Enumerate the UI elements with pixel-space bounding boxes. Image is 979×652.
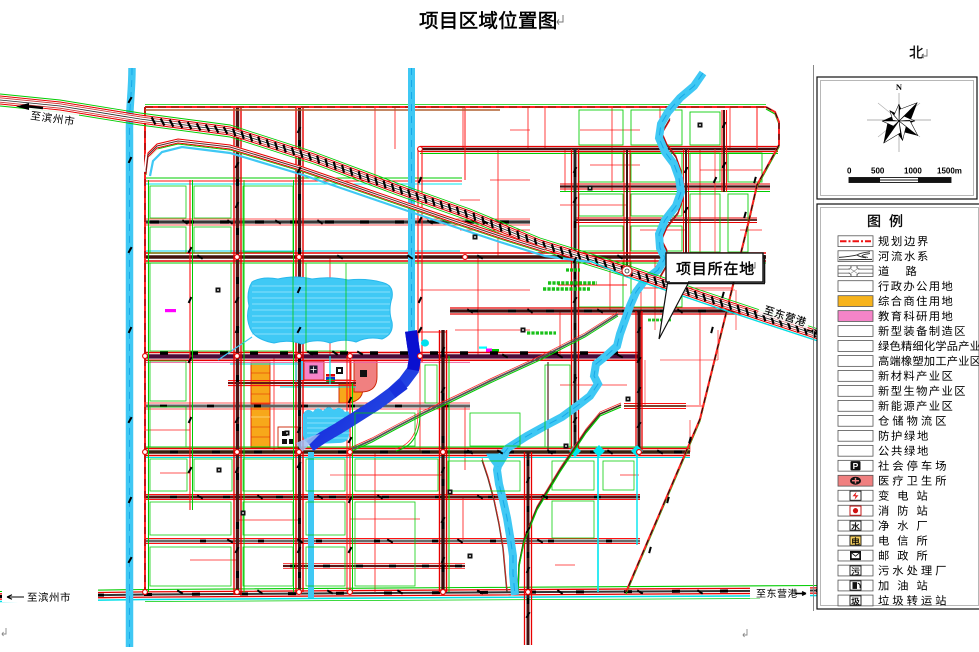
svg-text:1000: 1000 (904, 167, 922, 176)
svg-text:500: 500 (871, 167, 885, 176)
svg-text:1500m: 1500m (937, 167, 962, 176)
svg-text:N: N (896, 82, 903, 92)
svg-text:P: P (853, 461, 859, 471)
svg-text:0: 0 (847, 167, 852, 176)
